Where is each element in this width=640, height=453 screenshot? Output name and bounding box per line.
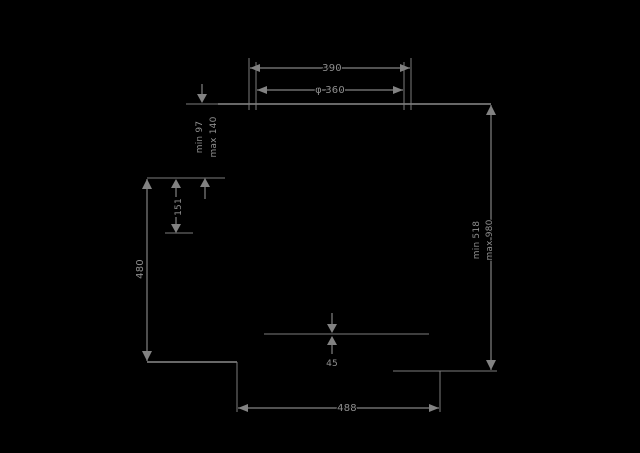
upper-left-min-label: min 97 [195, 121, 205, 154]
center-gap-label: 45 [326, 359, 338, 369]
arrow-up-icon [142, 179, 152, 189]
arrow-left-icon [257, 86, 267, 94]
upper-left-max-label: max 140 [209, 116, 219, 157]
arrow-down-icon [197, 94, 207, 103]
arrow-left-icon [250, 64, 260, 72]
top-diameter-label: φ 360 [315, 85, 345, 96]
arrow-up-icon [200, 178, 210, 187]
arrow-left-icon [238, 404, 248, 412]
arrow-down-icon [486, 360, 496, 370]
right-max-label: max 980 [485, 219, 495, 260]
top-width-label: 390 [322, 63, 342, 74]
drawing-canvas: 390 φ 360 min 97 max 140 151 480 min 518… [0, 0, 640, 453]
left-small-height-label: 151 [174, 198, 184, 216]
arrow-up-icon [327, 336, 337, 345]
left-height-label: 480 [135, 259, 146, 279]
bottom-width-label: 488 [337, 403, 357, 414]
arrow-right-icon [400, 64, 410, 72]
arrow-down-icon [327, 324, 337, 333]
arrow-right-icon [393, 86, 403, 94]
arrow-up-icon [171, 179, 181, 188]
dimension-drawing: 390 φ 360 min 97 max 140 151 480 min 518… [0, 0, 640, 453]
right-min-label: min 518 [472, 221, 482, 259]
arrow-up-icon [486, 105, 496, 115]
arrow-down-icon [171, 224, 181, 233]
arrow-down-icon [142, 351, 152, 361]
arrow-right-icon [429, 404, 439, 412]
